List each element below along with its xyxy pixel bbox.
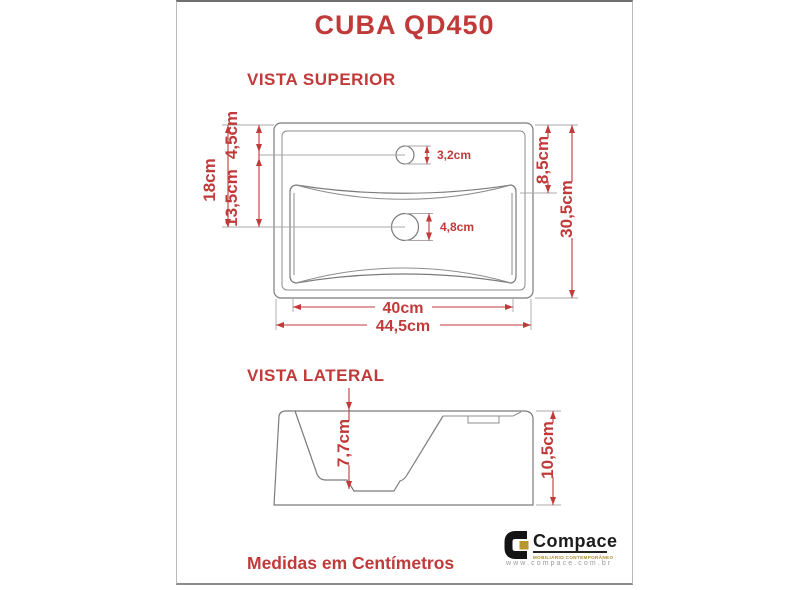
- dim-10-5cm-label: 10,5cm: [538, 421, 557, 479]
- sink-side-outline: [274, 411, 533, 505]
- sink-top-outline: [274, 123, 533, 298]
- top-view-heading: VISTA SUPERIOR: [247, 70, 396, 90]
- dim-faucet-hole: 3,2cm: [425, 146, 472, 164]
- dim-13-5cm-label: 13,5cm: [222, 169, 241, 227]
- page-title: CUBA QD450: [176, 10, 633, 41]
- dim-8-5cm-label: 8,5cm: [533, 136, 552, 184]
- logo-gold-square: [520, 541, 529, 550]
- dim-total-height: 10,5cm: [538, 411, 557, 505]
- brand-underline: [533, 551, 607, 553]
- basin-profile: [295, 411, 443, 491]
- dim-40cm-label: 40cm: [383, 300, 424, 317]
- dim-outer-width: 44,5cm: [276, 318, 531, 335]
- dim-4-5cm-label: 4,5cm: [222, 111, 241, 159]
- compace-logo-icon: [504, 530, 531, 560]
- side-view-heading: VISTA LATERAL: [247, 366, 384, 386]
- side-view-drawing: 7,7cm 10,5cm: [210, 385, 600, 520]
- dim-basin-depth: 7,7cm: [334, 388, 353, 489]
- dim-outer-height: 30,5cm: [557, 125, 576, 298]
- dim-18cm-label: 18cm: [200, 158, 219, 201]
- dim-30-5cm-label: 30,5cm: [557, 180, 576, 238]
- dim-drain-hole: 4,8cm: [426, 214, 474, 241]
- dim-inner-width: 40cm: [293, 300, 513, 317]
- brand-block: Compace MOBILIÁRIO CONTEMPORÂNEO: [533, 532, 613, 560]
- dim-44-5cm-label: 44,5cm: [376, 318, 430, 335]
- brand-name: Compace: [533, 532, 613, 550]
- dim-3-2cm-label: 3,2cm: [437, 148, 471, 162]
- brand-website: www.compace.com.br: [506, 560, 612, 567]
- dim-4-8cm-label: 4,8cm: [440, 220, 474, 234]
- overflow-slot: [468, 416, 499, 423]
- top-view-drawing: 18cm 4,5cm 13,5cm 8,5cm 30,5cm 3,2cm 4,8…: [200, 108, 600, 348]
- footer-note: Medidas em Centímetros: [247, 553, 454, 574]
- dim-7-7cm-label: 7,7cm: [334, 419, 353, 467]
- dim-rim-depth: 8,5cm: [533, 125, 552, 193]
